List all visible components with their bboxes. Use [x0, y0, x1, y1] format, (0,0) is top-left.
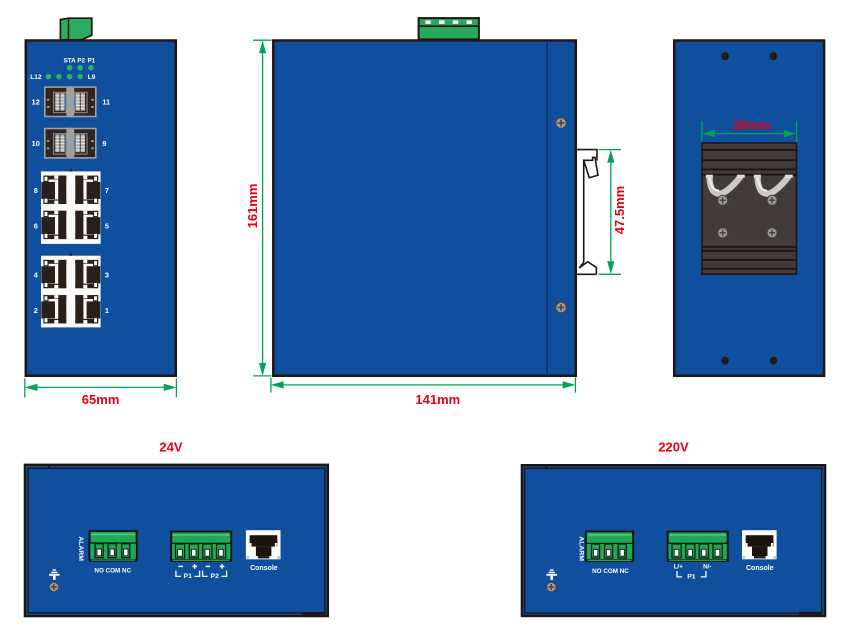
svg-text:P1: P1 [87, 58, 95, 65]
svg-text:10: 10 [32, 139, 40, 148]
svg-text:24V: 24V [159, 440, 182, 455]
svg-text:P1: P1 [184, 573, 193, 580]
svg-text:161mm: 161mm [245, 184, 260, 229]
svg-text:38mm: 38mm [733, 118, 771, 133]
svg-text:N/-: N/- [703, 563, 711, 570]
svg-text:65mm: 65mm [82, 392, 120, 407]
svg-text:7: 7 [105, 186, 109, 195]
svg-text:5: 5 [105, 221, 109, 230]
svg-text:P2: P2 [77, 58, 85, 65]
svg-text:P1: P1 [687, 574, 696, 581]
svg-text:220V: 220V [658, 440, 689, 455]
svg-text:8: 8 [34, 186, 38, 195]
svg-text:STA: STA [64, 58, 77, 65]
svg-text:NO COM NC: NO COM NC [592, 568, 629, 575]
svg-text:Console: Console [746, 565, 774, 572]
svg-text:L/+: L/+ [674, 563, 683, 570]
svg-text:6: 6 [34, 221, 38, 230]
svg-text:L12: L12 [30, 74, 42, 81]
svg-text:L9: L9 [88, 74, 96, 81]
svg-text:3: 3 [105, 271, 109, 280]
svg-text:ALARM: ALARM [578, 536, 585, 561]
svg-text:NO COM NC: NO COM NC [94, 568, 131, 575]
svg-text:Console: Console [250, 565, 278, 572]
svg-text:9: 9 [102, 139, 106, 148]
svg-text:1: 1 [105, 306, 109, 315]
svg-text:47.5mm: 47.5mm [612, 186, 627, 234]
svg-text:11: 11 [102, 98, 110, 107]
svg-text:P2: P2 [211, 573, 220, 580]
svg-text:12: 12 [32, 98, 40, 107]
svg-text:ALARM: ALARM [77, 536, 84, 561]
svg-text:141mm: 141mm [415, 392, 460, 407]
svg-text:2: 2 [34, 306, 38, 315]
